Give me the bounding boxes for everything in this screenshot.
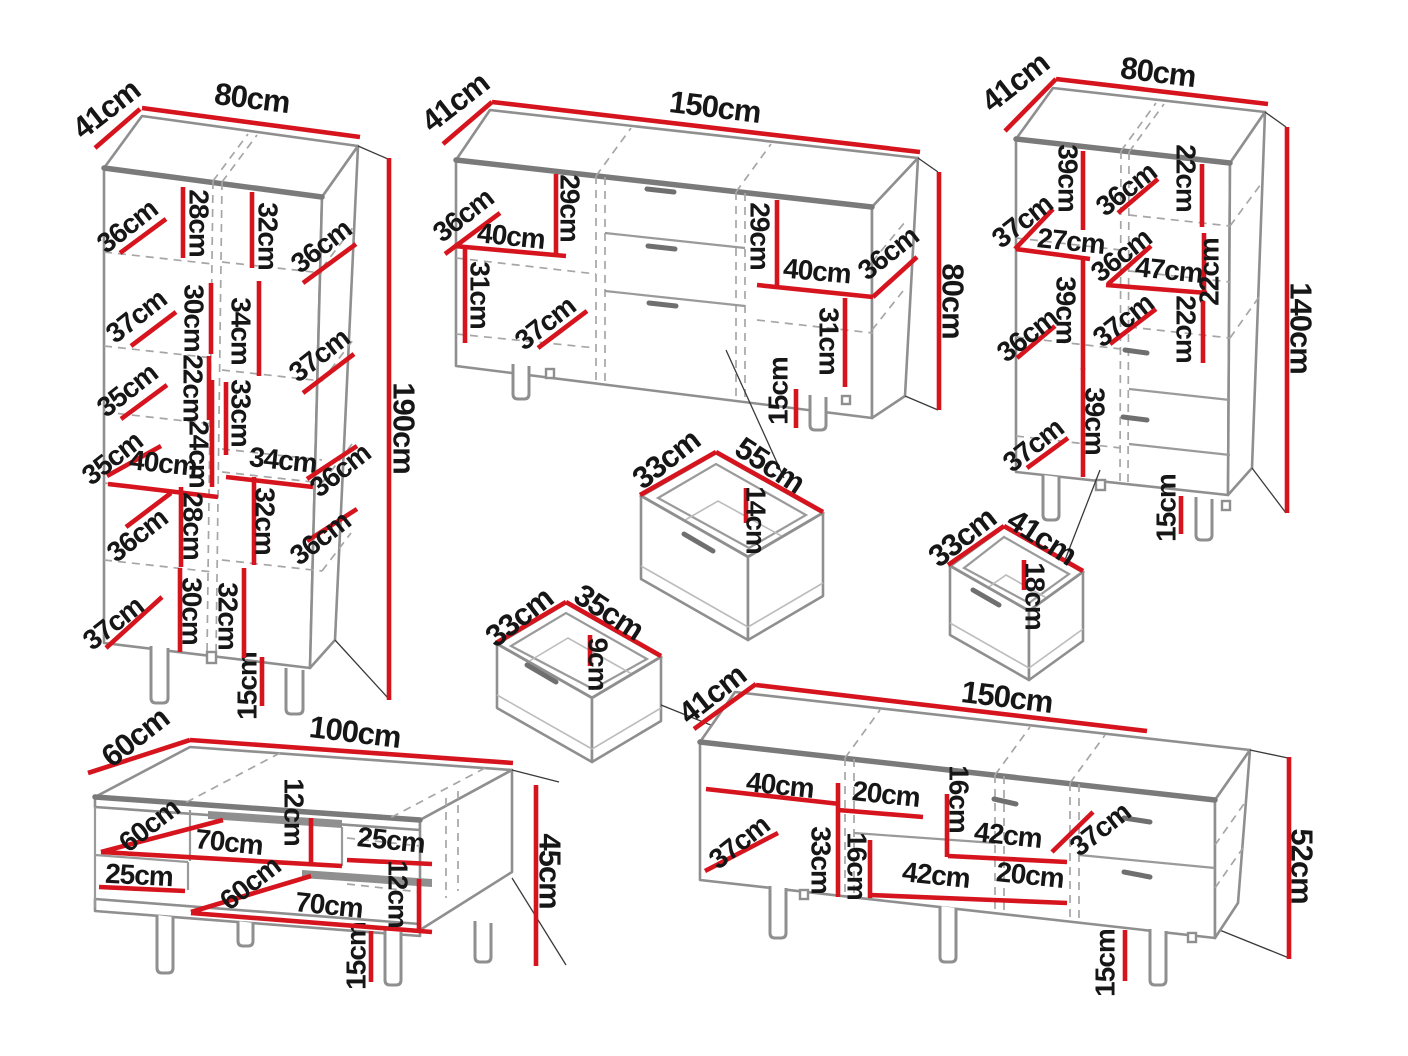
dimension-label-internal: 29cm <box>554 174 585 242</box>
dimension-label-height: 140cm <box>1283 282 1318 374</box>
tv-stand-foot <box>1188 933 1196 942</box>
dimension-label-height: 80cm <box>935 263 970 338</box>
dimension-label-internal: 39cm <box>1052 144 1083 212</box>
dimension-label-internal: 28cm <box>177 492 208 560</box>
dimension-label-internal: 40cm <box>782 253 852 290</box>
cabinet-leg <box>286 668 303 714</box>
dimension-label-internal: 16cm <box>943 765 974 833</box>
dimension-label-height: 52cm <box>1284 828 1319 903</box>
dimension-label-height: 45cm <box>532 833 567 908</box>
cabinet-leg <box>1196 497 1212 540</box>
dimension-label-internal: 22cm <box>1170 144 1201 212</box>
cabinet-foot <box>1222 501 1230 510</box>
dimension-label-internal: 16cm <box>841 832 872 900</box>
dimension-label-internal: 29cm <box>744 202 775 270</box>
diagram-canvas: 41cm80cm190cm15cm36cm28cm32cm36cm37cm30c… <box>0 0 1408 1056</box>
dimension-label-internal: 31cm <box>813 307 844 375</box>
tv-stand-leg <box>770 886 786 938</box>
dimension-label-legs: 15cm <box>341 922 372 990</box>
dimension-label-height: 190cm <box>386 382 421 474</box>
dimension-label-internal: 30cm <box>176 577 207 645</box>
dimension-label-internal: 22cm <box>177 354 208 422</box>
cabinet-side-face <box>1228 112 1265 495</box>
dimension-label-height: 9cm <box>582 637 613 690</box>
dimension-label-internal: 25cm <box>356 821 427 859</box>
dimension-label-internal: 39cm <box>1050 276 1081 344</box>
dimension-line-internal <box>993 900 1067 903</box>
sideboard-foot <box>842 396 850 404</box>
dimension-label-internal: 22cm <box>1170 295 1201 363</box>
dimension-label-internal: 31cm <box>464 261 495 329</box>
dimension-label-internal: 24cm <box>183 420 214 488</box>
dimension-label-legs: 15cm <box>763 357 794 425</box>
dimension-label-internal: 25cm <box>104 858 173 893</box>
tv-stand-leg <box>1150 929 1166 985</box>
table-leg <box>385 930 401 985</box>
furniture-dimensions-diagram: 41cm80cm190cm15cm36cm28cm32cm36cm37cm30c… <box>0 0 1408 1056</box>
dimension-label-internal: 70cm <box>194 823 265 861</box>
dimension-label-legs: 15cm <box>1151 474 1182 542</box>
dimension-label-internal: 12cm <box>382 860 413 928</box>
dimension-label-internal: 28cm <box>183 189 214 257</box>
dimension-label-internal: 32cm <box>212 582 243 650</box>
dimension-label-width: 80cm <box>212 76 291 120</box>
dimension-label-internal: 34cm <box>225 297 256 365</box>
cabinet-leg <box>1043 475 1059 520</box>
cabinet-leg <box>151 646 168 703</box>
table-leg <box>157 915 173 973</box>
dimension-label-internal: 32cm <box>252 202 283 270</box>
dimension-label-height: 18cm <box>1019 562 1050 630</box>
dimension-label-height: 14cm <box>740 486 771 554</box>
sideboard-leg <box>513 364 529 399</box>
dimension-label-legs: 15cm <box>232 652 263 720</box>
cabinet-foot <box>1096 480 1105 490</box>
dimension-label-internal: 12cm <box>278 778 309 846</box>
sideboard-foot <box>546 369 554 378</box>
tv-stand-leg <box>940 906 956 962</box>
dimension-label-internal: 33cm <box>225 379 256 447</box>
sideboard-leg <box>810 395 826 430</box>
diagram-line <box>1250 750 1288 758</box>
dimension-label-internal: 39cm <box>1079 387 1110 455</box>
dimension-label-legs: 15cm <box>1090 929 1121 997</box>
dimension-label-internal: 33cm <box>805 826 836 894</box>
table-leg <box>238 921 253 946</box>
table-leg <box>475 921 491 962</box>
cabinet-foot <box>207 652 216 663</box>
dimension-label-internal: 30cm <box>178 284 209 352</box>
dimension-label-width: 150cm <box>959 674 1054 720</box>
dimension-label-internal: 32cm <box>249 487 280 555</box>
